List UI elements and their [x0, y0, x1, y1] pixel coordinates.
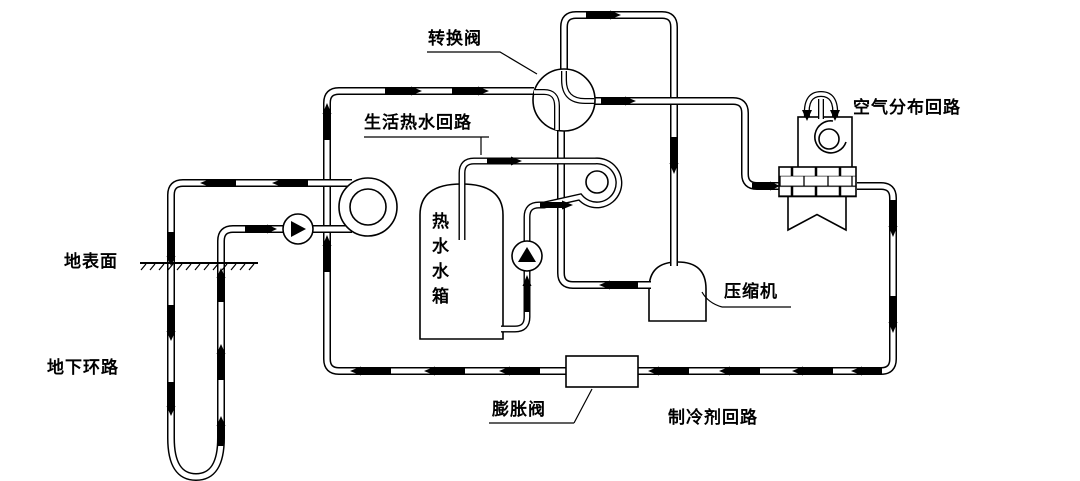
label-refrigerant-loop: 制冷剂回路 — [668, 409, 758, 428]
expansion-valve — [566, 356, 638, 387]
ground-pump — [283, 214, 313, 244]
label-reversing-valve: 转换阀 — [428, 30, 482, 49]
label-ground-surface: 地表面 — [64, 253, 118, 272]
hot-water-loop-leader — [364, 137, 489, 155]
label-underground-loop: 地下环路 — [47, 359, 119, 378]
label-hot-water-tank: 热水水箱 — [429, 212, 446, 332]
ground-surface-line — [140, 263, 258, 270]
valve-to-airhandler-pipe — [594, 101, 782, 186]
compressor-body — [649, 262, 706, 321]
valve-coil-compressor-pipe — [561, 131, 651, 285]
reversing-valve-leader — [427, 52, 537, 74]
label-expansion-valve: 膨胀阀 — [492, 401, 546, 420]
tank-pump — [512, 241, 542, 271]
air-inlet-banner — [788, 196, 846, 230]
air-coil-brick-band — [779, 167, 856, 197]
valve-to-compressor-pipe — [564, 15, 674, 266]
reversing-valve — [533, 69, 595, 131]
label-compressor: 压缩机 — [724, 283, 778, 302]
label-air-distribution-loop: 空气分布回路 — [853, 99, 961, 118]
tank-coil-heat-exchanger — [586, 171, 608, 193]
label-domestic-hot-water-loop: 生活热水回路 — [364, 114, 472, 133]
air-handler — [779, 94, 856, 230]
heat-pump-diagram: 转换阀 生活热水回路 空气分布回路 压缩机 地表面 地下环路 膨胀阀 制冷剂回路… — [0, 0, 1080, 481]
air-out-arrow-icon — [802, 94, 840, 121]
fan-icon — [819, 129, 839, 149]
